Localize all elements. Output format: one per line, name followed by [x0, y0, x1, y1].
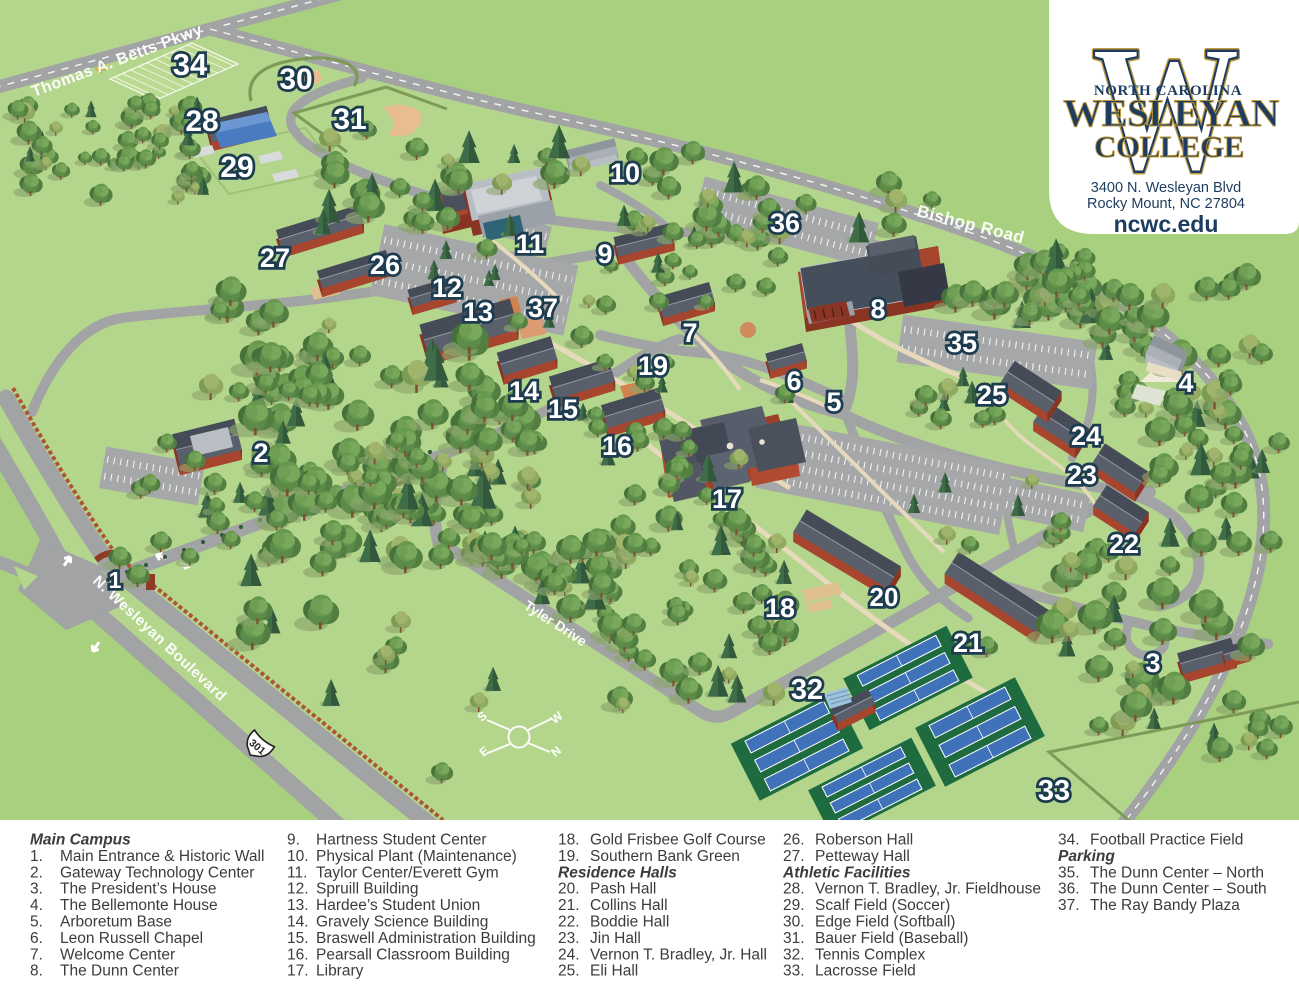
svg-text:2: 2	[253, 438, 268, 468]
svg-text:16.: 16.	[287, 946, 309, 963]
svg-text:10.: 10.	[287, 848, 309, 865]
svg-text:Parking: Parking	[1058, 848, 1115, 865]
svg-text:ncwc.edu: ncwc.edu	[1114, 211, 1219, 237]
svg-text:37: 37	[528, 293, 558, 323]
svg-text:Gateway Technology Center: Gateway Technology Center	[60, 864, 254, 881]
svg-text:19.: 19.	[558, 848, 580, 865]
svg-text:Athletic Facilities: Athletic Facilities	[782, 864, 911, 881]
svg-text:36.: 36.	[1058, 881, 1080, 898]
svg-text:29: 29	[220, 151, 253, 184]
svg-text:7: 7	[682, 318, 697, 348]
svg-text:26.: 26.	[783, 832, 805, 849]
svg-text:Hardee’s Student Union: Hardee’s Student Union	[316, 897, 480, 914]
svg-text:20: 20	[870, 582, 899, 612]
svg-text:32.: 32.	[783, 946, 805, 963]
svg-text:Pash Hall: Pash Hall	[590, 881, 656, 898]
svg-text:6.: 6.	[30, 930, 43, 947]
svg-text:Boddie Hall: Boddie Hall	[590, 914, 669, 931]
svg-text:Tennis Complex: Tennis Complex	[815, 946, 926, 963]
svg-text:30: 30	[279, 63, 312, 96]
svg-text:1.: 1.	[30, 848, 43, 865]
svg-text:21: 21	[953, 628, 983, 658]
svg-text:Taylor Center/Everett Gym: Taylor Center/Everett Gym	[316, 864, 499, 881]
svg-text:Scalf Field (Soccer): Scalf Field (Soccer)	[815, 897, 950, 914]
svg-text:20.: 20.	[558, 881, 580, 898]
svg-text:28: 28	[185, 105, 218, 138]
svg-text:The Dunn Center – North: The Dunn Center – North	[1090, 864, 1264, 881]
svg-text:35.: 35.	[1058, 864, 1080, 881]
svg-text:24: 24	[1071, 421, 1101, 451]
svg-text:Vernon T. Bradley, Jr. Hall: Vernon T. Bradley, Jr. Hall	[590, 946, 767, 963]
svg-text:6: 6	[786, 366, 801, 396]
svg-text:32: 32	[791, 674, 823, 706]
svg-text:24.: 24.	[558, 946, 580, 963]
svg-text:7.: 7.	[30, 946, 43, 963]
svg-text:13.: 13.	[287, 897, 309, 914]
svg-text:3.: 3.	[30, 881, 43, 898]
svg-text:The Ray Bandy Plaza: The Ray Bandy Plaza	[1090, 897, 1240, 914]
svg-text:34: 34	[173, 47, 208, 82]
svg-text:1: 1	[109, 567, 122, 593]
svg-text:Main Campus: Main Campus	[30, 832, 131, 849]
svg-text:27.: 27.	[783, 848, 805, 865]
svg-text:Roberson Hall: Roberson Hall	[815, 832, 913, 849]
svg-text:Eli Hall: Eli Hall	[590, 963, 638, 980]
svg-text:10: 10	[610, 158, 640, 188]
svg-text:Bauer Field (Baseball): Bauer Field (Baseball)	[815, 930, 968, 947]
svg-text:Petteway Hall: Petteway Hall	[815, 848, 910, 865]
svg-text:8: 8	[870, 294, 885, 324]
svg-text:22: 22	[1109, 529, 1139, 559]
svg-text:Edge Field (Softball): Edge Field (Softball)	[815, 914, 955, 931]
svg-text:36: 36	[770, 208, 800, 238]
svg-text:Library: Library	[316, 963, 364, 980]
svg-text:23.: 23.	[558, 930, 580, 947]
svg-text:4: 4	[1178, 368, 1193, 398]
svg-text:12: 12	[432, 273, 462, 303]
svg-text:35: 35	[947, 328, 977, 358]
svg-text:18.: 18.	[558, 832, 580, 849]
svg-text:Rocky Mount, NC 27804: Rocky Mount, NC 27804	[1087, 196, 1245, 212]
svg-text:29.: 29.	[783, 897, 805, 914]
svg-text:4.: 4.	[30, 897, 43, 914]
svg-text:Physical Plant (Maintenance): Physical Plant (Maintenance)	[316, 848, 517, 865]
svg-text:37.: 37.	[1058, 897, 1080, 914]
svg-text:15: 15	[548, 394, 578, 424]
svg-text:14.: 14.	[287, 914, 309, 931]
svg-text:9: 9	[597, 239, 612, 269]
svg-text:3400 N. Wesleyan Blvd: 3400 N. Wesleyan Blvd	[1091, 180, 1241, 196]
svg-text:15.: 15.	[287, 930, 309, 947]
svg-text:8.: 8.	[30, 963, 43, 980]
svg-text:11: 11	[516, 229, 545, 259]
svg-text:5: 5	[826, 387, 841, 417]
svg-text:Pearsall Classroom Building: Pearsall Classroom Building	[316, 946, 510, 963]
svg-text:3: 3	[1145, 648, 1160, 678]
svg-text:31: 31	[333, 103, 366, 136]
svg-text:19: 19	[638, 351, 668, 381]
svg-text:Hartness Student Center: Hartness Student Center	[316, 832, 487, 849]
svg-text:Gravely Science Building: Gravely Science Building	[316, 914, 488, 931]
svg-text:23: 23	[1067, 460, 1097, 490]
svg-text:Spruill Building: Spruill Building	[316, 881, 419, 898]
svg-text:12.: 12.	[287, 881, 309, 898]
svg-text:17: 17	[712, 484, 742, 514]
svg-text:9.: 9.	[287, 832, 300, 849]
svg-text:COLLEGE: COLLEGE	[1094, 129, 1244, 164]
svg-text:34.: 34.	[1058, 832, 1080, 849]
svg-text:25.: 25.	[558, 963, 580, 980]
svg-text:The Dunn Center – South: The Dunn Center – South	[1090, 881, 1267, 898]
svg-text:Gold Frisbee Golf Course: Gold Frisbee Golf Course	[590, 832, 766, 849]
svg-text:The Bellemonte House: The Bellemonte House	[60, 897, 218, 914]
svg-text:18: 18	[765, 593, 795, 623]
svg-text:14: 14	[509, 376, 539, 406]
svg-text:26: 26	[370, 250, 400, 280]
svg-text:Southern Bank Green: Southern Bank Green	[590, 848, 740, 865]
svg-text:The President’s House: The President’s House	[60, 881, 217, 898]
svg-text:27: 27	[260, 243, 290, 273]
svg-text:Main Entrance & Historic Wall: Main Entrance & Historic Wall	[60, 848, 264, 865]
svg-text:22.: 22.	[558, 914, 580, 931]
svg-text:17.: 17.	[287, 963, 309, 980]
svg-text:Braswell Administration Buildi: Braswell Administration Building	[316, 930, 536, 947]
svg-text:Arboretum Base: Arboretum Base	[60, 914, 172, 931]
svg-text:25: 25	[977, 380, 1007, 410]
svg-text:5.: 5.	[30, 914, 43, 931]
svg-text:The Dunn Center: The Dunn Center	[60, 963, 179, 980]
svg-text:Collins Hall: Collins Hall	[590, 897, 668, 914]
svg-text:33: 33	[1038, 775, 1070, 807]
svg-text:16: 16	[602, 431, 632, 461]
svg-text:13: 13	[463, 297, 493, 327]
svg-text:Football Practice Field: Football Practice Field	[1090, 832, 1243, 849]
svg-text:11.: 11.	[287, 864, 307, 881]
svg-text:Lacrosse Field: Lacrosse Field	[815, 963, 916, 980]
svg-text:Leon Russell Chapel: Leon Russell Chapel	[60, 930, 203, 947]
svg-text:2.: 2.	[30, 864, 43, 881]
svg-text:30.: 30.	[783, 914, 805, 931]
svg-text:Welcome Center: Welcome Center	[60, 946, 175, 963]
svg-text:Vernon T. Bradley, Jr. Fieldho: Vernon T. Bradley, Jr. Fieldhouse	[815, 881, 1041, 898]
svg-text:31.: 31.	[783, 930, 805, 947]
svg-text:Residence Halls: Residence Halls	[558, 864, 677, 881]
svg-text:21.: 21.	[558, 897, 580, 914]
svg-text:33.: 33.	[783, 963, 805, 980]
svg-text:Jin Hall: Jin Hall	[590, 930, 641, 947]
svg-text:28.: 28.	[783, 881, 805, 898]
